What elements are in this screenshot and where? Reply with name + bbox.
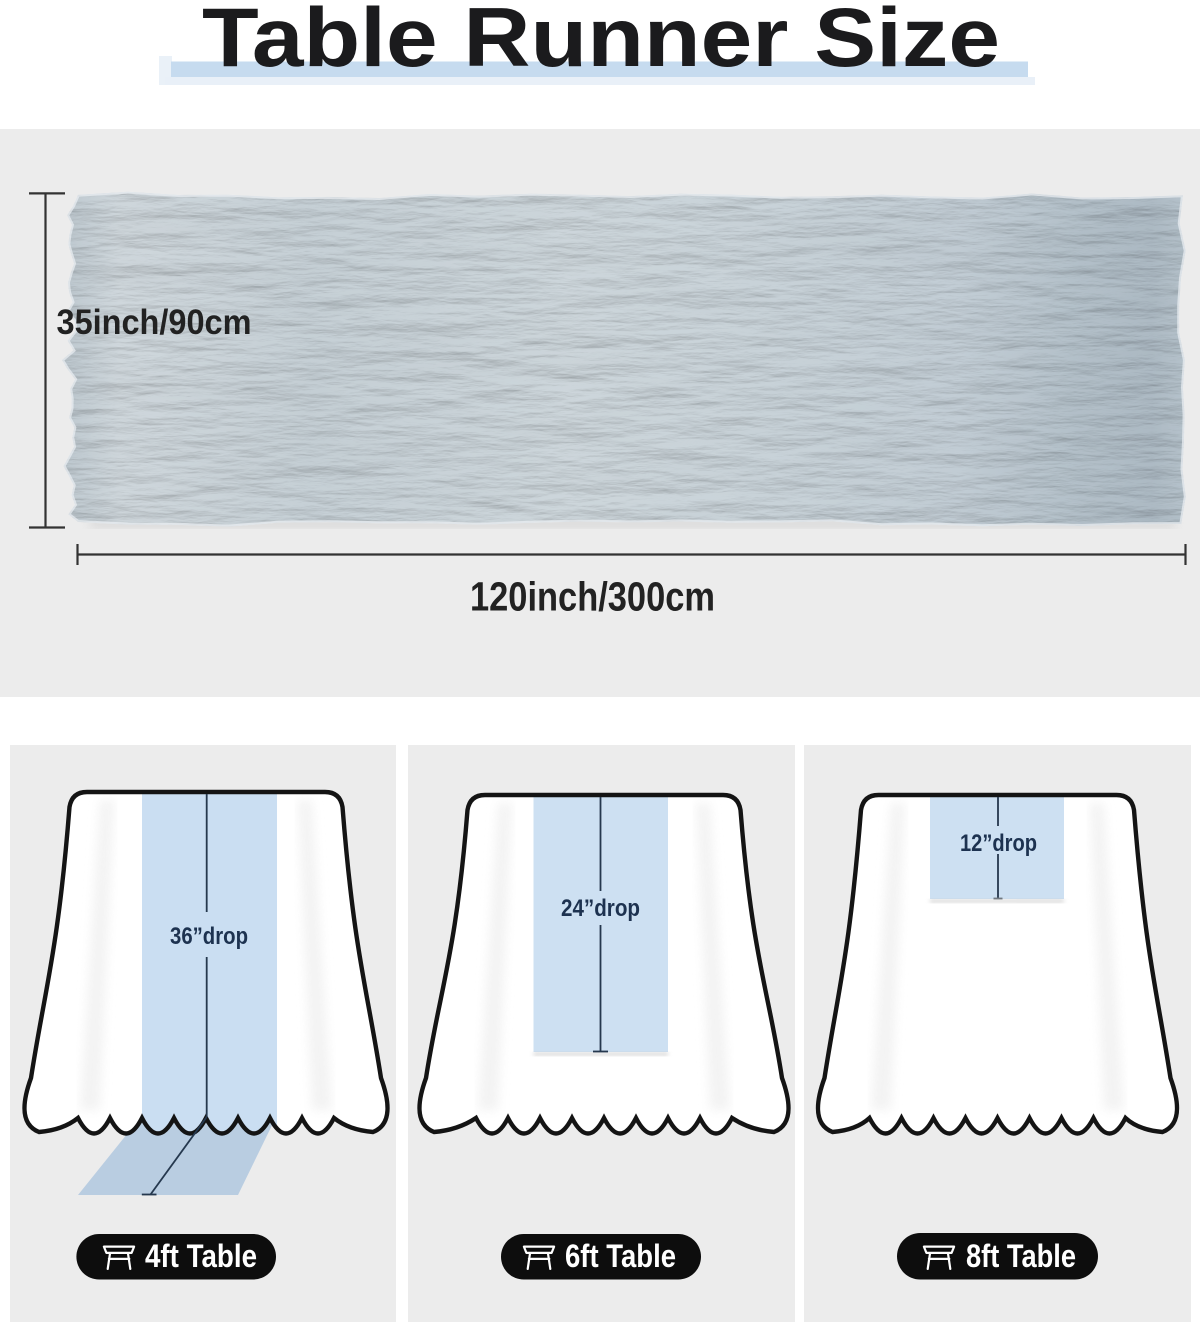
svg-text:12”drop: 12”drop [960, 830, 1037, 857]
svg-text:35inch/90cm: 35inch/90cm [57, 303, 252, 342]
svg-text:24”drop: 24”drop [561, 895, 640, 922]
svg-text:36”drop: 36”drop [170, 923, 248, 950]
svg-text:6ft Table: 6ft Table [565, 1238, 676, 1274]
svg-text:8ft Table: 8ft Table [966, 1238, 1076, 1274]
svg-text:Table Runner Size: Table Runner Size [202, 0, 1000, 84]
svg-text:120inch/300cm: 120inch/300cm [470, 574, 715, 620]
svg-text:4ft Table: 4ft Table [145, 1238, 257, 1274]
